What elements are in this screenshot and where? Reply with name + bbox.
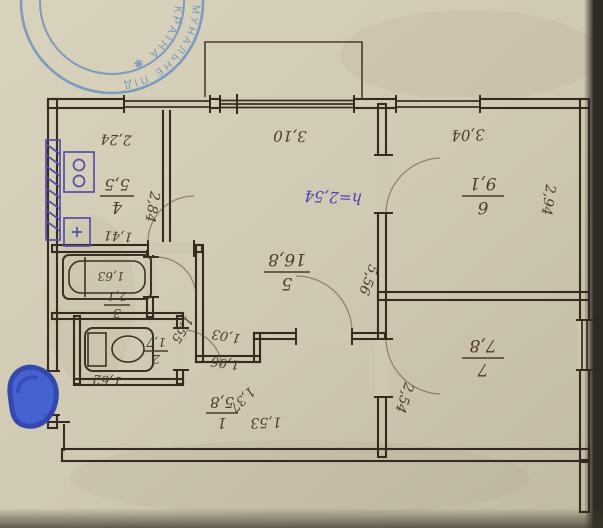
paper-stain xyxy=(340,10,600,100)
dim-hall-bottom: 1,53 xyxy=(250,413,282,430)
room-number: 6 xyxy=(477,197,488,217)
photo-edge-right-fade xyxy=(584,0,594,528)
photo-edge-right xyxy=(593,0,603,528)
room-area: 5,5 xyxy=(104,175,129,194)
room-number: 7 xyxy=(477,359,488,379)
room-area: 7,8 xyxy=(469,335,496,355)
room-number: 1 xyxy=(217,414,227,432)
dim-living-top: 3,10 xyxy=(273,127,307,146)
room-area: 2,1 xyxy=(107,289,128,304)
dim-kitchen-bottom: 1,41 xyxy=(103,227,133,244)
floor-plan-svg: ЖИТЛОВО КОМУНАЛЬНЕ ПІД ✱ УКРАЇНА ✱ xyxy=(0,0,603,528)
room-number: 2 xyxy=(152,352,161,367)
photo-edge-bottom xyxy=(0,508,603,528)
dim-bedroom6-top: 3,04 xyxy=(451,125,485,144)
room-number: 5 xyxy=(282,273,293,293)
room-number: 4 xyxy=(112,198,123,217)
dim-bathtub-length: 1,63 xyxy=(97,269,124,283)
ceiling-height-note: h=2,54 xyxy=(304,187,362,208)
scanned-floor-plan-page: ЖИТЛОВО КОМУНАЛЬНЕ ПІД ✱ УКРАЇНА ✱ xyxy=(0,0,603,528)
paper-stain xyxy=(70,440,530,516)
dim-hall-left: 1,62 xyxy=(92,371,122,388)
room-area: 1,7 xyxy=(146,335,166,350)
room-number: 3 xyxy=(113,306,121,321)
room-area: 16,8 xyxy=(268,249,306,269)
room-area: 9,1 xyxy=(469,173,496,193)
blue-ink-blob xyxy=(10,367,57,426)
dim-kitchen-top: 2,24 xyxy=(100,130,133,147)
